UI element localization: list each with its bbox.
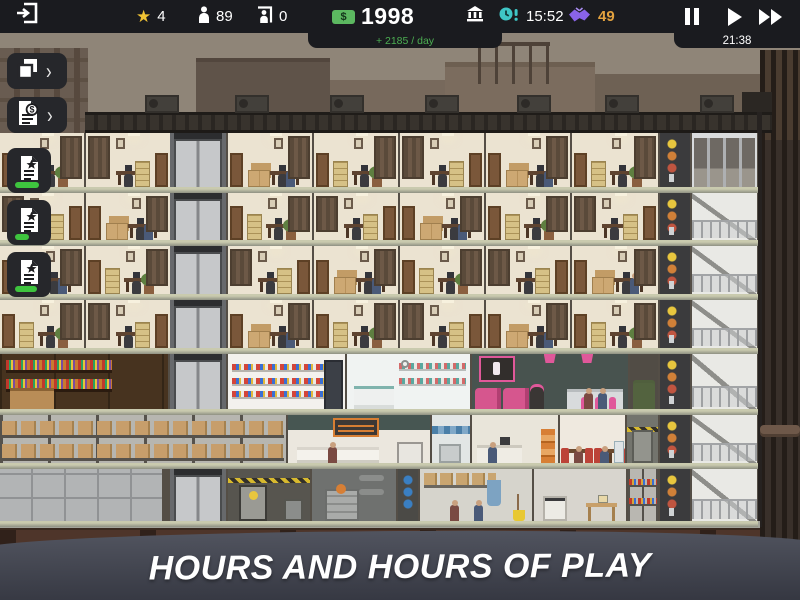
pic-prop <box>516 251 525 262</box>
person-prop <box>584 393 593 409</box>
stairs-room[interactable] <box>692 354 757 409</box>
cab-prop <box>363 214 378 240</box>
deadline-stat: 15:52 <box>498 0 564 33</box>
elev-room[interactable] <box>170 133 226 187</box>
office-room[interactable] <box>400 246 484 294</box>
dlamp-prop <box>581 354 593 363</box>
cpm-prop <box>543 496 567 521</box>
pic-prop <box>532 138 541 149</box>
deals-value: 49 <box>598 8 615 25</box>
hvac-unit <box>605 95 639 113</box>
floor-slab <box>0 187 758 193</box>
deadline-value: 15:52 <box>526 8 564 25</box>
dumpster-room[interactable] <box>630 354 658 409</box>
cab-prop <box>19 322 34 348</box>
play-button[interactable] <box>722 6 748 27</box>
visitors-stat: 0 <box>256 0 287 33</box>
exit-door-icon <box>14 1 40 30</box>
blind-prop <box>146 196 168 232</box>
hvac-unit <box>425 95 459 113</box>
office-room[interactable] <box>86 193 170 240</box>
office-room[interactable] <box>400 300 484 348</box>
hvac-unit <box>330 95 364 113</box>
dstool-prop <box>609 397 616 409</box>
chair-prop <box>532 227 541 240</box>
cab-prop <box>49 214 64 240</box>
workers-stat: 89 <box>198 0 233 33</box>
rating-stat: ★ 4 <box>136 0 166 33</box>
boxes-prop <box>248 170 270 187</box>
elev-room[interactable] <box>170 246 226 294</box>
person-prop <box>328 447 337 463</box>
cab-prop <box>135 161 150 187</box>
project-progress-track <box>15 234 45 240</box>
pic-prop <box>526 198 535 209</box>
door-prop <box>69 206 82 240</box>
play-icon <box>728 8 742 26</box>
workers-value: 89 <box>216 8 233 25</box>
ustrip-room[interactable] <box>660 415 690 463</box>
pic-prop <box>430 305 439 316</box>
stairs-room[interactable] <box>692 193 757 240</box>
local-time-value: 21:38 <box>723 35 752 47</box>
plant-prop <box>58 339 68 348</box>
mbox-prop <box>325 489 359 521</box>
game-viewport[interactable] <box>0 0 800 600</box>
door-prop <box>88 206 101 240</box>
pic-prop <box>618 251 627 262</box>
blind-prop <box>488 249 510 286</box>
door-prop <box>230 153 243 187</box>
electric-room[interactable] <box>627 415 658 463</box>
plant-prop <box>286 231 296 240</box>
ustrip-room[interactable] <box>660 354 690 409</box>
door-prop <box>402 260 415 294</box>
door-prop <box>88 260 101 294</box>
pic-prop <box>430 138 439 149</box>
visitor-icon <box>256 6 273 28</box>
ustrip-room[interactable] <box>660 469 690 521</box>
blind-prop <box>374 303 396 340</box>
person-prop <box>450 505 459 521</box>
pause-button[interactable] <box>679 6 705 27</box>
door-prop <box>643 206 656 240</box>
hvac-unit <box>235 95 269 113</box>
building-floor-5 <box>0 354 758 409</box>
exit-button[interactable] <box>14 5 40 26</box>
blind-prop <box>546 303 568 340</box>
pic-prop <box>612 138 621 149</box>
diner-room[interactable] <box>472 354 628 409</box>
cpdesk-prop <box>586 503 617 521</box>
office-room[interactable] <box>572 300 658 348</box>
blind-prop <box>60 249 82 286</box>
pic-prop <box>274 305 283 316</box>
elev-room[interactable] <box>170 193 226 240</box>
ustrip-room[interactable] <box>660 300 690 348</box>
active-project-button-2[interactable] <box>7 200 51 245</box>
tchair-prop <box>585 448 593 463</box>
chair-prop <box>352 227 361 240</box>
door-prop <box>155 153 168 187</box>
bank-icon <box>465 5 485 27</box>
building-floor-1 <box>0 133 758 187</box>
copier-room[interactable] <box>534 469 626 521</box>
office-room[interactable] <box>572 246 658 294</box>
jshelf-prop <box>424 473 496 488</box>
tmach-prop <box>439 444 461 463</box>
copy-icon <box>15 56 41 87</box>
blind-prop <box>316 196 338 232</box>
ccase-prop <box>397 442 423 463</box>
door-prop <box>488 153 501 187</box>
hvac-unit <box>517 95 551 113</box>
chair-prop <box>446 281 455 294</box>
door-prop <box>574 153 587 187</box>
door-prop <box>383 206 396 240</box>
elev-room[interactable] <box>170 469 226 521</box>
blind-prop <box>574 196 596 232</box>
pic-prop <box>612 305 621 316</box>
cpscreen-prop <box>598 495 608 503</box>
office-room[interactable] <box>228 133 312 187</box>
cab-prop <box>535 268 550 294</box>
building-floor-2 <box>0 193 758 240</box>
chair-prop <box>46 335 55 348</box>
money-value: 1998 <box>361 3 414 30</box>
cab-prop <box>623 214 638 240</box>
pic-prop <box>446 198 455 209</box>
cab-prop <box>449 322 464 348</box>
income-per-day-value: + 2185 / day <box>376 35 434 47</box>
belect-room[interactable] <box>228 469 310 521</box>
project-progress-bar <box>15 234 29 240</box>
mpipe-prop <box>359 475 384 481</box>
hvac-unit <box>700 95 734 113</box>
door-prop <box>402 206 415 240</box>
machine-room[interactable] <box>312 469 396 521</box>
deadline-clock-icon <box>498 5 520 28</box>
person-prop <box>474 505 483 521</box>
glass-room[interactable] <box>692 133 757 187</box>
djuke-prop <box>530 384 544 409</box>
door-prop <box>488 314 501 348</box>
door-prop <box>469 314 482 348</box>
office-room[interactable] <box>86 246 170 294</box>
document-dollar-icon: $ <box>15 99 42 132</box>
dlrack-prop <box>541 429 555 463</box>
chevron-right-icon: › <box>46 60 52 82</box>
building-floor-3 <box>0 246 758 294</box>
stairs-room[interactable] <box>692 469 757 521</box>
finance-report-button[interactable]: $ › <box>7 97 67 133</box>
building-floor-6 <box>0 415 758 463</box>
lockers-room[interactable] <box>0 469 162 521</box>
person-prop <box>488 447 497 463</box>
elev-room[interactable] <box>170 300 226 348</box>
dlreg-prop <box>500 437 510 445</box>
plant-prop <box>144 285 154 294</box>
floor-slab <box>0 409 758 415</box>
dbooth-prop <box>503 388 529 409</box>
door-prop <box>230 314 243 348</box>
tstripe-prop <box>432 426 470 434</box>
view-layers-button[interactable]: › <box>7 53 67 89</box>
door-prop <box>574 260 587 294</box>
blind-prop <box>634 249 656 286</box>
office-room[interactable] <box>400 133 484 187</box>
dlcounter-prop <box>477 445 522 463</box>
lrow-prop <box>6 360 112 373</box>
chair-prop <box>618 174 627 187</box>
wrow-prop <box>2 444 284 461</box>
pic-prop <box>354 305 363 316</box>
stairs-room[interactable] <box>692 415 757 463</box>
boxes-prop <box>592 277 614 294</box>
pic-prop <box>116 138 125 149</box>
ustrip-room[interactable] <box>660 246 690 294</box>
office-room[interactable] <box>314 193 398 240</box>
svg-text:$: $ <box>29 104 34 114</box>
signs-room[interactable] <box>398 469 418 521</box>
chair-prop <box>438 335 447 348</box>
pic-prop <box>258 251 267 262</box>
income-per-day-tab: + 2185 / day <box>308 33 502 48</box>
plant-prop <box>632 178 642 187</box>
blind-prop <box>230 249 252 286</box>
wrow-prop <box>2 421 284 438</box>
liquor-room[interactable] <box>0 354 168 409</box>
pic-prop <box>126 251 135 262</box>
plant-prop <box>632 339 642 348</box>
highrise-cross-section[interactable] <box>0 0 800 600</box>
cab-prop <box>135 322 150 348</box>
hud-topbar: ★ 4 89 0 $ 1998 1 <box>0 0 800 33</box>
local-time-tab: 21:38 <box>674 33 800 48</box>
chair-prop <box>274 227 283 240</box>
floor-slab <box>0 521 758 527</box>
chair-prop <box>124 335 133 348</box>
star-icon: ★ <box>136 8 151 25</box>
office-room[interactable] <box>486 300 570 348</box>
boxes-prop <box>106 223 128 240</box>
cab-prop <box>591 322 606 348</box>
stairs-room[interactable] <box>692 246 757 294</box>
boxes-prop <box>420 223 442 240</box>
pic-prop <box>440 251 449 262</box>
pic-prop <box>602 198 611 209</box>
office-room[interactable] <box>228 300 312 348</box>
pic-prop <box>274 138 283 149</box>
chair-prop <box>360 335 369 348</box>
door-prop <box>574 314 587 348</box>
blind-prop <box>146 249 168 286</box>
blind-prop <box>460 249 482 286</box>
bmach-prop <box>284 499 304 521</box>
lcounter-prop <box>10 388 54 409</box>
cab-prop <box>105 268 120 294</box>
blind-prop <box>288 136 310 179</box>
office-room[interactable] <box>314 246 398 294</box>
cab-prop <box>247 214 262 240</box>
hvac-unit <box>145 95 179 113</box>
pic-prop <box>354 138 363 149</box>
blind-prop <box>60 303 82 340</box>
blind-prop <box>634 136 656 179</box>
door-prop <box>316 314 329 348</box>
boxes-prop <box>506 170 528 187</box>
office-room[interactable] <box>572 133 658 187</box>
office-room[interactable] <box>314 133 398 187</box>
active-project-button-3[interactable] <box>7 252 51 297</box>
blind-prop <box>546 136 568 179</box>
chair-prop <box>360 174 369 187</box>
blind-prop <box>374 136 396 179</box>
elev-room[interactable] <box>170 354 226 409</box>
store-room[interactable] <box>228 354 345 409</box>
door-prop <box>155 314 168 348</box>
door-prop <box>297 260 310 294</box>
active-project-button-1[interactable] <box>7 148 51 193</box>
stairs-room[interactable] <box>692 300 757 348</box>
janitor-room[interactable] <box>420 469 532 521</box>
project-progress-track <box>15 286 45 292</box>
bshelf-room[interactable] <box>628 469 658 521</box>
csign-prop <box>333 418 379 437</box>
floor-slab <box>0 463 758 469</box>
exterior-pipe <box>760 425 800 434</box>
pclock-prop <box>401 360 409 368</box>
blind-prop <box>88 136 110 179</box>
warehouse-room[interactable] <box>0 415 286 463</box>
sfridge-prop <box>324 360 343 410</box>
banner-text: HOURS AND HOURS OF PLAY <box>0 545 800 589</box>
tile-room[interactable] <box>432 415 470 463</box>
office-room[interactable] <box>228 246 312 294</box>
office-room[interactable] <box>228 193 312 240</box>
chair-prop <box>618 335 627 348</box>
dlamp-prop <box>544 354 556 363</box>
handshake-icon <box>566 6 592 28</box>
cab-prop <box>449 161 464 187</box>
cafe-room[interactable] <box>288 415 430 463</box>
chair-prop <box>132 281 141 294</box>
blind-prop <box>546 196 568 232</box>
jbucket-prop <box>513 510 525 521</box>
pharmacy-room[interactable] <box>347 354 470 409</box>
floor-slab <box>0 294 758 300</box>
pic-prop <box>116 305 125 316</box>
office-room[interactable] <box>486 133 570 187</box>
pic-prop <box>268 198 277 209</box>
plant-prop <box>372 339 382 348</box>
cab-prop <box>277 268 292 294</box>
door-prop <box>488 206 501 240</box>
money-stat: $ 1998 <box>332 0 414 33</box>
bank-button[interactable] <box>462 5 488 26</box>
deals-button[interactable]: 49 <box>566 0 615 33</box>
office-room[interactable] <box>86 300 170 348</box>
cab-prop <box>333 161 348 187</box>
epanel-prop <box>632 430 653 463</box>
building-floor-7 <box>0 469 758 521</box>
boxes-prop <box>248 331 270 348</box>
game-screen: ★ 4 89 0 $ 1998 1 <box>0 0 800 600</box>
pic-prop <box>40 305 49 316</box>
person-prop <box>598 393 607 409</box>
deli-room[interactable] <box>472 415 558 463</box>
office-room[interactable] <box>0 300 84 348</box>
dbooth-prop <box>475 388 501 409</box>
ustrip-room[interactable] <box>660 133 690 187</box>
pic-prop <box>532 305 541 316</box>
building-roof <box>85 112 772 133</box>
blind-prop <box>88 303 110 340</box>
pic-prop <box>132 198 141 209</box>
pic-prop <box>344 198 353 209</box>
project-progress-bar <box>15 286 37 292</box>
cab-prop <box>419 268 434 294</box>
boxes-prop <box>334 277 356 294</box>
bsrow-prop <box>629 479 657 487</box>
office-room[interactable] <box>486 193 570 240</box>
rating-value: 4 <box>157 8 165 25</box>
prow-prop <box>399 378 466 386</box>
office-room[interactable] <box>486 246 570 294</box>
fast-forward-icon <box>759 9 783 25</box>
cab-prop <box>591 161 606 187</box>
tchair-prop <box>561 448 569 463</box>
door-prop <box>230 206 243 240</box>
stair-tower-head <box>742 92 772 114</box>
blind-prop <box>634 303 656 340</box>
office-room[interactable] <box>86 133 170 187</box>
worker-icon <box>198 6 210 28</box>
blind-prop <box>60 136 82 179</box>
jcloth-prop <box>487 480 501 506</box>
chair-prop <box>524 281 533 294</box>
project-progress-bar <box>15 182 39 188</box>
office-room[interactable] <box>572 193 658 240</box>
plant-prop <box>544 231 554 240</box>
office-room[interactable] <box>314 300 398 348</box>
bsrow-prop <box>629 498 657 506</box>
blind-prop <box>460 196 482 232</box>
plant-prop <box>372 178 382 187</box>
project-progress-track <box>15 182 45 188</box>
building-floor-4 <box>0 300 758 348</box>
mdot-prop <box>336 484 346 494</box>
blind-prop <box>288 303 310 340</box>
door-prop <box>469 153 482 187</box>
fast-forward-button[interactable] <box>758 6 784 27</box>
chevron-right-icon: › <box>47 104 53 126</box>
pcounter-prop <box>354 386 393 409</box>
ustrip-room[interactable] <box>660 193 690 240</box>
person-prop <box>574 451 583 463</box>
pic-prop <box>360 251 369 262</box>
marketing-banner: HOURS AND HOURS OF PLAY <box>0 528 800 600</box>
chair-prop <box>438 174 447 187</box>
door-prop <box>316 153 329 187</box>
floor-slab <box>0 240 758 246</box>
blind-prop <box>402 303 424 340</box>
office-room[interactable] <box>400 193 484 240</box>
tables-room[interactable] <box>560 415 625 463</box>
door-prop <box>555 260 568 294</box>
chair-prop <box>124 174 133 187</box>
tcooler-prop <box>614 441 624 463</box>
